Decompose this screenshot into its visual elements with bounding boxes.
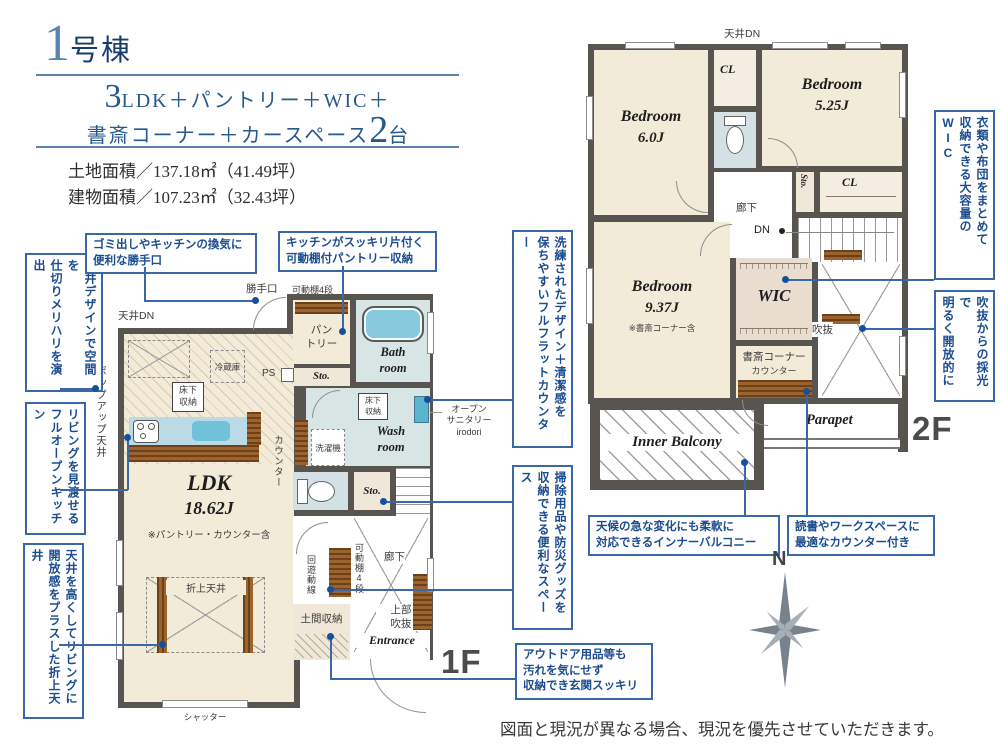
f1-washer: 洗濯機 [311, 429, 345, 466]
f1-entrance-door-arc [370, 659, 426, 713]
f1-sanitary-leader [430, 412, 442, 413]
f2-room-cl1 [714, 50, 756, 106]
connector-c2-h [60, 489, 128, 491]
land-area: 土地面積／137.18㎡（41.49坪） [68, 157, 306, 182]
f1-counter-ldk [295, 420, 308, 465]
f1-bath-label: Bath room [358, 345, 428, 376]
f1-ceiling-dn-area [128, 340, 190, 378]
f1-coffered-label: 折上天井 [166, 580, 246, 595]
plan-line2-main: 書斎コーナー＋カースペース [87, 125, 370, 147]
f2-wic-label: WIC [736, 286, 812, 306]
f1-counter-wood-bottom [129, 445, 259, 462]
f1-underfloor-storage2: 床下 収納 [358, 393, 388, 420]
rule-top [36, 74, 459, 76]
f2-toilet-bowl [726, 126, 744, 154]
connector-c9 [744, 463, 746, 515]
f1-hall-label: 廊下 [384, 549, 405, 564]
connector-c3-dot [159, 641, 166, 648]
f1-shutter-label: シャッター [162, 711, 248, 723]
f1-entrance-label: Entrance [356, 633, 428, 648]
connector-c8-h [330, 678, 515, 680]
callout-storage-space: 掃除用品や防災グッズを 収納できる便利なスペース [512, 465, 573, 630]
f1-window-left2 [116, 612, 123, 660]
f2-bed937-note: ※書斎コーナー含 [594, 322, 730, 334]
f1-stove-burner1 [137, 423, 144, 430]
f1-toilet-tank [297, 479, 308, 504]
f1-ldk-size: 18.62J [124, 498, 294, 519]
floorplan-flyer: 1号棟 3LDK＋パントリー＋WIC＋ 書斎コーナー＋カースペース2台 土地面積… [0, 0, 1000, 749]
connector-c10-dot [803, 388, 810, 395]
f2-ceiling-dn-label: 天井DN [724, 26, 760, 41]
f2-window-top2 [772, 42, 828, 49]
f2-window-right1 [899, 72, 906, 118]
f2-bed525-size: 5.25J [762, 98, 902, 115]
f1-doma-hatch [295, 634, 348, 658]
connector-c4-dot [252, 297, 259, 304]
disclaimer-text: 図面と現況が異なる場合、現況を優先させていただきます。 [500, 716, 944, 740]
connector-c10 [806, 391, 808, 515]
f2-wic-rail-bottom [740, 328, 808, 334]
connector-c11-dot [782, 276, 789, 283]
f2-floor-tag: 2F [912, 410, 953, 448]
f2-room-cl2 [820, 172, 902, 212]
connector-c7a-dot [380, 498, 387, 505]
f2-balcony-label: Inner Balcony [600, 434, 754, 451]
f2-parapet-rail [764, 438, 900, 449]
connector-c2-v [127, 437, 129, 490]
connector-c6-dot [424, 396, 431, 403]
f2-window-top3 [845, 42, 881, 49]
f2-bed6-size: 6.0J [594, 130, 708, 147]
f1-ldk-label: LDK [124, 470, 294, 496]
f2-stairs-line [786, 232, 894, 233]
f2-storage-label: Sto. [799, 174, 809, 188]
f1-underfloor-storage: 床下 収納 [172, 382, 204, 412]
f2-window-right2 [899, 336, 906, 376]
plan-line2-big: 2 [369, 109, 388, 151]
f1-window-right2 [427, 558, 434, 592]
connector-c7b-dot [327, 586, 334, 593]
f1-wash-label: Wash room [356, 424, 426, 455]
f1-counter-label: カウンター [270, 435, 284, 488]
building-suffix: 号棟 [70, 35, 132, 67]
f1-ps-label: PS [262, 368, 275, 379]
connector-c4-h [144, 300, 256, 302]
callout-doma: アウトドア用品等も 汚れを気にせず 収納でき玄関スッキリ [515, 643, 653, 700]
f2-study-counter [738, 380, 812, 398]
f1-window-right1 [427, 312, 434, 354]
callout-open-kitchen: リビングを見渡せる フルオープンキッチン [25, 402, 86, 535]
f1-window-left1 [116, 540, 123, 586]
f2-cl1-label: CL [720, 62, 735, 77]
f1-sanitary-label: オープン サニタリー irodori [442, 404, 496, 438]
f2-cl2-rail [826, 196, 896, 197]
connector-c2-dot [124, 434, 131, 441]
f2-parapet-label: Parapet [806, 412, 853, 429]
rule-bottom [36, 146, 459, 148]
callout-katteguchi: ゴミ出しやキッチンの換気に 便利な勝手口 [85, 233, 257, 274]
f2-cl2-label: CL [842, 175, 857, 190]
callout-study-counter: 読書やワークスペースに 最適なカウンター付き [787, 515, 935, 556]
building-number: 1 [44, 15, 70, 72]
f1-toilet-bowl [308, 481, 335, 502]
f2-hall-label: 廊下 [736, 200, 757, 215]
connector-c1 [60, 388, 96, 390]
f1-kaiyu-label: 回遊動線 [305, 555, 318, 595]
f1-stove-burner2 [148, 423, 155, 430]
building-title: 1号棟 [44, 14, 132, 73]
f1-fridge: 冷蔵庫 [210, 350, 245, 383]
f2-bed525-label: Bedroom [762, 76, 902, 94]
f1-katteguchi-label: 勝手口 [246, 281, 278, 296]
f2-dn-dot [779, 228, 785, 234]
f2-wic-rail-top [740, 263, 808, 269]
f2-study-label: 書斎コーナー [730, 349, 818, 364]
f2-bed6-label: Bedroom [594, 108, 708, 126]
f1-doma-label: 土間収納 [293, 611, 350, 626]
f2-void-label: 吹抜 [812, 322, 833, 337]
connector-c6 [430, 399, 512, 401]
f1-storage1: Sto. [293, 368, 350, 386]
callout-void-light: 吹抜からの採光で 明るく開放的に [934, 290, 995, 402]
f1-ps-box [281, 368, 294, 382]
connector-c3 [59, 644, 164, 646]
callout-wic: 衣類や布団をまとめて 収納できる大容量のWIC [934, 110, 995, 280]
callout-flat-counter: 洗練されたデザイン＋清潔感を 保ちやすいフルフラットカウンター [512, 230, 573, 448]
compass-rose-icon [743, 570, 827, 688]
f2-bed937-size: 9.37J [594, 300, 730, 317]
f2-window-left1 [586, 96, 593, 140]
building-area: 建物面積／107.23㎡（32.43坪） [68, 183, 306, 208]
f1-bathtub [362, 306, 424, 342]
callout-inner-balcony: 天候の急な変化にも柔軟に 対応できるインナーバルコニー [588, 515, 780, 556]
f1-ldk-note: ※パントリー・カウンター含 [124, 527, 294, 541]
callout-coffered-ceiling: 天井を高くしてリビングに 開放感をプラスした折上天井 [23, 543, 84, 719]
f2-window-top1 [625, 42, 675, 49]
f1-pantry-shelf [295, 302, 348, 314]
connector-c4-v [144, 267, 146, 301]
compass-n-label: N [772, 548, 786, 571]
connector-c9-dot [741, 459, 748, 466]
connector-c12 [863, 328, 934, 330]
connector-c7b [331, 589, 512, 591]
f1-stove-burner3 [140, 433, 146, 439]
f1-shelf4b-label: 可動棚4段 [353, 543, 366, 594]
f2-dn-label: DN [754, 224, 770, 236]
f1-ceiling-dn-label: 天井DN [118, 308, 154, 323]
connector-c7a [384, 501, 512, 503]
connector-c12-dot [859, 325, 866, 332]
f2-void-wood1 [824, 250, 862, 260]
f1-kitchen-sink [192, 421, 230, 441]
connector-c8-dot [327, 633, 334, 640]
connector-c8-v [330, 637, 332, 679]
f2-study-counter-label: カウンター [736, 364, 812, 377]
plan-line2-tail: 台 [388, 125, 408, 147]
connector-c5-v [342, 266, 344, 332]
connector-c5-dot [339, 328, 346, 335]
f1-floor-tag: 1F [441, 643, 482, 681]
f1-shelf4-label: 可動棚4段 [292, 283, 333, 296]
f1-shutter-window [162, 700, 248, 708]
connector-c1-dot [92, 385, 99, 392]
callout-pantry: キッチンがスッキリ片付く 可動棚付パントリー収納 [278, 231, 437, 272]
f2-toilet-tank [724, 116, 746, 126]
f2-bed937-label: Bedroom [594, 278, 730, 296]
f1-counter-wood-right [247, 412, 261, 445]
f2-window-left2 [586, 268, 593, 324]
connector-c11 [786, 279, 934, 281]
